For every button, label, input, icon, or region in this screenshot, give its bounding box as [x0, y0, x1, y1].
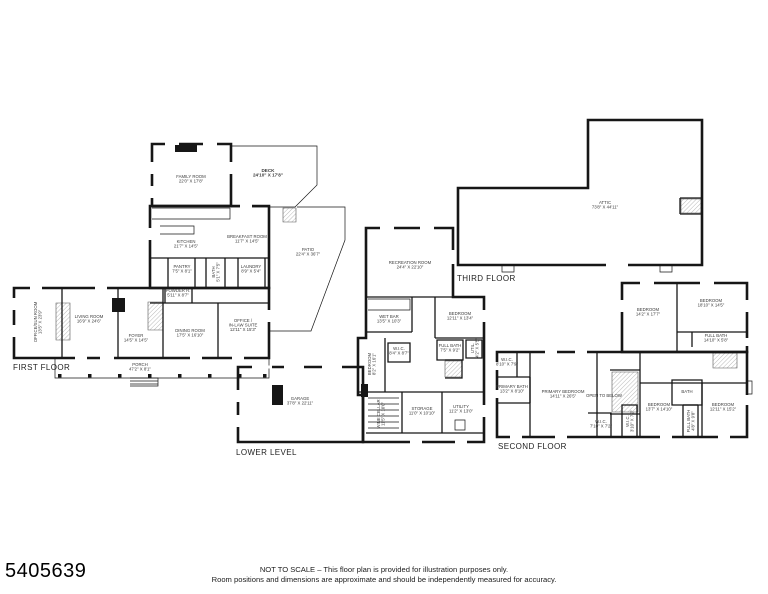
room-label: BEDROOM12'11" X 15'2" — [710, 402, 737, 412]
room-label: FULL BATH14'10" X 5'8" — [704, 333, 729, 343]
room-label: OFFICE /IN-LAW SUITE12'11" X 15'3" — [229, 318, 258, 332]
room-label: STORAGE11'0" X 10'10" — [409, 406, 436, 416]
room-label: WET BAR13'5" X 10'3" — [377, 314, 402, 324]
room-label: UTIL.4'2" X 5'5" — [470, 338, 480, 358]
room-label: PRIMARY BATH13'2" X 8'10" — [496, 384, 528, 394]
room-label: FOYER14'5" X 14'5" — [124, 333, 149, 343]
room-label: RECREATION ROOM24'4" X 22'10" — [389, 260, 432, 270]
floor-label-second-floor: SECOND FLOOR — [498, 442, 567, 451]
disclaimer-line2: Room positions and dimensions are approx… — [0, 575, 768, 585]
room-label: PORCH47'2" X 8'1" — [129, 362, 151, 372]
floor-label-third-floor: THIRD FLOOR — [457, 274, 516, 283]
room-label: BEDROOM13'7" X 14'10" — [646, 402, 673, 412]
floor-first-floor: FAMILY ROOM22'0" X 17'8"DECK24'10" X 17'… — [13, 144, 345, 386]
room-label: W.I.C.3'10" X 7'2" — [625, 410, 635, 432]
room-label: PANTRY7'5" X 8'1" — [172, 264, 192, 274]
room-label: OFFICE/SUN ROOM13'5" X 23'9" — [33, 301, 43, 342]
room-label: LAUNDRY8'9" X 5'4" — [241, 264, 262, 274]
room-label: ATTIC73'8" X 44'11" — [592, 200, 619, 210]
floorplan-drawing: FAMILY ROOM22'0" X 17'8"DECK24'10" X 17'… — [13, 120, 752, 457]
room-label: OPEN TO BELOW — [586, 393, 623, 398]
room-label: FULL BATH7'5" X 9'2" — [439, 343, 462, 353]
room-label: BEDROOM12'11" X 13'4" — [447, 311, 474, 321]
floor-second-floor: BEDROOM14'2" X 17'7"BEDROOM18'10" X 14'5… — [496, 283, 752, 451]
room-label: BEDROOM8'2" X 16'1" — [367, 352, 377, 375]
floorplan-page: { "page": { "listing_id": "5405639", "di… — [0, 0, 768, 594]
room-label: WINE CELLAR11'5" X 10'0" — [376, 399, 386, 428]
room-label: FULL BATH4'8" X 9'8" — [686, 410, 696, 433]
room-label: BEDROOM18'10" X 14'5" — [698, 298, 725, 308]
room-label: KITCHEN21'7" X 14'5" — [174, 239, 199, 249]
floor-lower-level: RECREATION ROOM24'4" X 22'10"WET BAR13'5… — [236, 228, 484, 457]
room-label: W.I.C.7'10" X 7'2" — [590, 419, 612, 429]
room-label: UTILITY11'2" X 13'0" — [449, 404, 473, 414]
floor-third-floor: ATTIC73'8" X 44'11"THIRD FLOOR — [457, 120, 702, 283]
room-label: DINING ROOM17'5" X 16'10" — [175, 328, 205, 338]
room-label: DECK24'10" X 17'8" — [253, 168, 283, 178]
floor-label-first-floor: FIRST FLOOR — [13, 363, 70, 372]
room-label: W.I.C.8'4" X 8'7" — [389, 346, 409, 356]
room-label: FAMILY ROOM22'0" X 17'8" — [176, 174, 206, 184]
room-label: BATH — [681, 389, 692, 394]
room-label: PRIMARY BEDROOM14'11" X 26'5" — [542, 389, 585, 399]
floor-label-lower-level: LOWER LEVEL — [236, 448, 297, 457]
room-label: LIVING ROOM16'9" X 24'6" — [75, 314, 104, 324]
room-label: BEDROOM14'2" X 17'7" — [636, 307, 661, 317]
floorplan-svg: FAMILY ROOM22'0" X 17'8"DECK24'10" X 17'… — [0, 0, 768, 594]
room-label: W.I.C.8'10" X 7'9" — [496, 357, 518, 367]
room-label: PATIO22'4" X 36'7" — [296, 247, 321, 257]
room-label: BATH5'1" X 7'5" — [211, 262, 221, 282]
room-label: GARAGE37'8" X 22'11" — [287, 396, 314, 406]
room-label: BREAKFAST ROOM11'7" X 14'5" — [227, 234, 267, 244]
disclaimer: NOT TO SCALE – This floor plan is provid… — [0, 565, 768, 584]
room-label: POWDER R.5'11" X 8'7" — [166, 288, 191, 298]
disclaimer-line1: NOT TO SCALE – This floor plan is provid… — [0, 565, 768, 575]
